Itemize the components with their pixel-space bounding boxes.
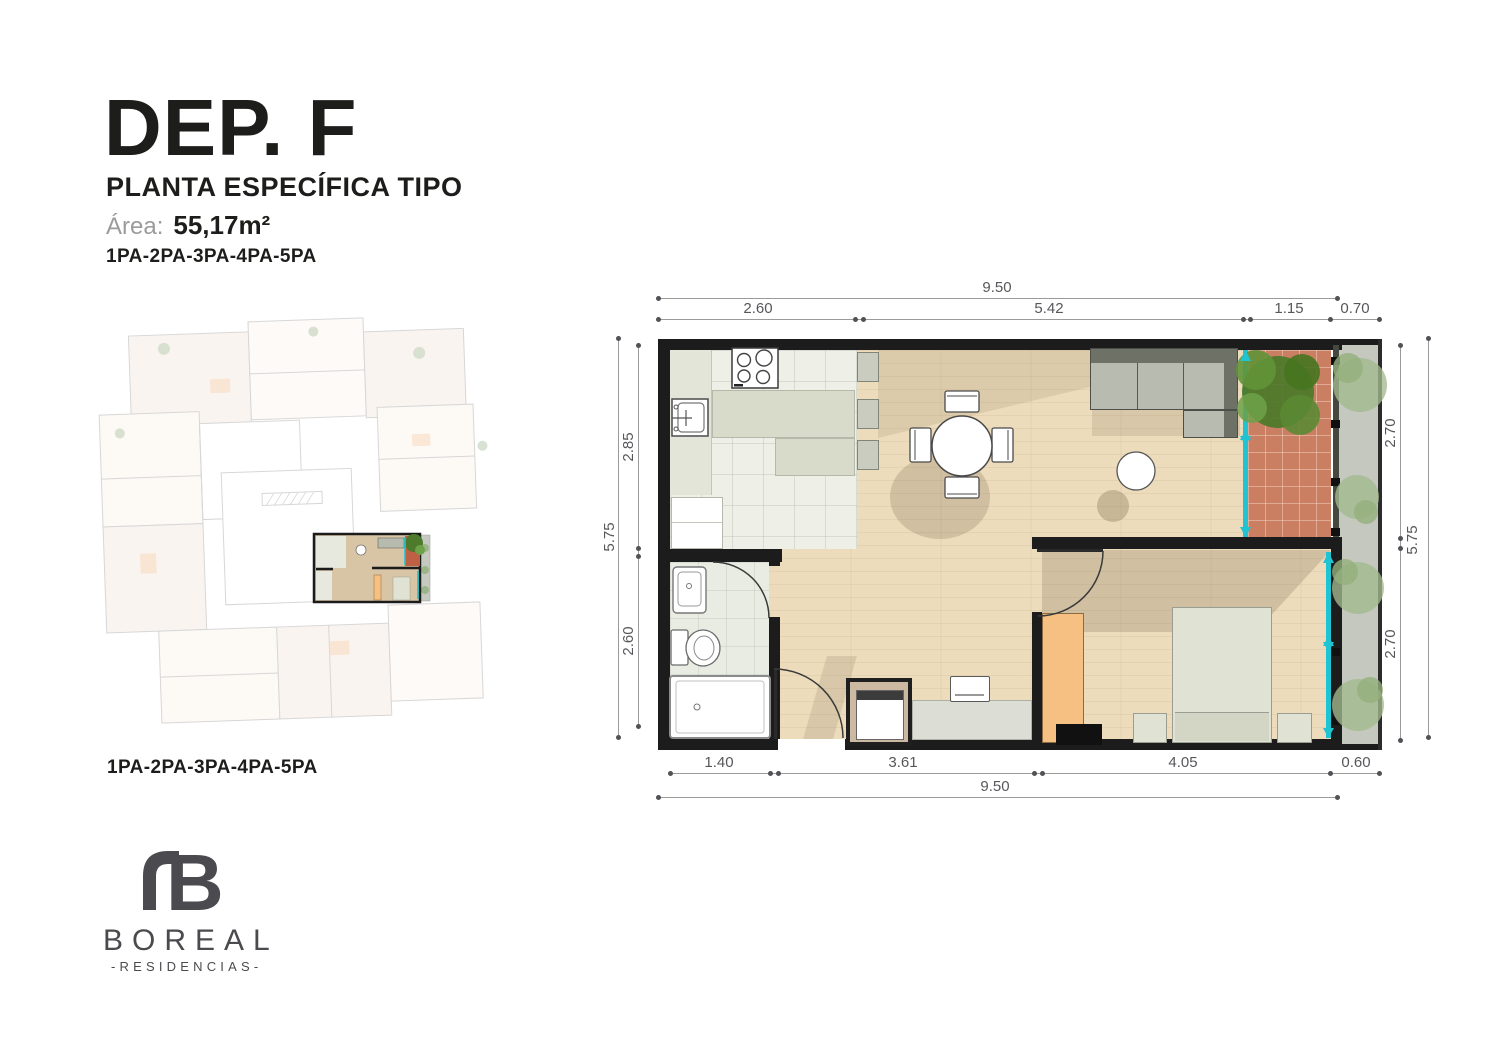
logo-letter: B — [166, 846, 224, 912]
dim-dot — [853, 317, 858, 322]
wall-top-garden — [1342, 339, 1382, 345]
wall-shower-stub — [661, 721, 701, 740]
dim-line-left-total — [618, 338, 619, 737]
garden-strip — [1339, 345, 1378, 744]
dim-line-bottom-total — [658, 797, 1337, 798]
dim-dot — [1426, 735, 1431, 740]
dim-dot — [616, 336, 621, 341]
dim-line-top-total — [658, 298, 1337, 299]
floorplan-sheet: DEP. F PLANTA ESPECÍFICA TIPO Área:55,17… — [0, 0, 1500, 1061]
dim-dot — [1377, 317, 1382, 322]
dim-right-seg-2: 2.70 — [1383, 614, 1399, 674]
entry-door-leaf — [774, 668, 777, 739]
sofa-arm — [1224, 349, 1237, 409]
dim-dot — [636, 724, 641, 729]
wall-garden-outer — [1378, 339, 1382, 750]
wall-right-bedroom — [1331, 545, 1342, 750]
sofa-chaise-arm — [1224, 411, 1237, 437]
dim-dot — [1426, 336, 1431, 341]
refrigerator — [671, 497, 723, 549]
dim-dot — [1328, 317, 1333, 322]
refrigerator-seam — [672, 522, 722, 523]
wall-top — [658, 339, 1342, 350]
bar-stool-2 — [857, 399, 879, 429]
dim-right-total: 5.75 — [1405, 510, 1421, 570]
dim-line-right-total — [1428, 338, 1429, 737]
kitchen-counter-left — [670, 350, 712, 495]
balcony-floor — [1248, 350, 1331, 537]
wall-bottom-bath — [658, 739, 778, 750]
area-row: Área:55,17m² — [106, 210, 270, 241]
bedroom-door-leaf — [1037, 549, 1103, 552]
balcony-railing — [1333, 345, 1339, 545]
dim-dot — [1377, 771, 1382, 776]
wall-kitchen-bath-divider — [658, 549, 782, 562]
dim-dot — [1328, 771, 1333, 776]
brand-tagline: -RESIDENCIAS- — [111, 959, 262, 974]
dim-dot — [776, 771, 781, 776]
kitchen-counter-top — [712, 390, 855, 438]
wall-left — [658, 339, 670, 750]
dim-dot — [1241, 317, 1246, 322]
wall-living-bedroom — [1032, 537, 1342, 549]
dim-dot — [1040, 771, 1045, 776]
dim-bottom-total: 9.50 — [965, 779, 1025, 795]
nightstand-right — [1277, 713, 1312, 743]
dim-bottom-seg-4: 0.60 — [1326, 755, 1386, 771]
dim-dot — [768, 771, 773, 776]
page-subtitle: PLANTA ESPECÍFICA TIPO — [106, 172, 463, 203]
dim-dot — [861, 317, 866, 322]
dim-dot — [636, 554, 641, 559]
dim-dot — [1248, 317, 1253, 322]
nightstand-left — [1133, 713, 1167, 743]
dim-dot — [1398, 536, 1403, 541]
dim-top-seg-2: 5.42 — [1019, 301, 1079, 317]
page-title: DEP. F — [104, 88, 358, 168]
dim-top-total: 9.50 — [967, 280, 1027, 296]
brand-name: BOREAL — [103, 924, 279, 958]
wall-bottom-garden — [1342, 744, 1382, 750]
dim-dot — [1032, 771, 1037, 776]
boreal-logo-mark: B — [136, 846, 231, 912]
faded-building — [96, 314, 497, 725]
dim-left-seg-1: 2.85 — [621, 417, 637, 477]
bathroom-floor — [670, 562, 769, 739]
dim-line-left-segments — [638, 345, 639, 726]
overview-levels-caption: 1PA-2PA-3PA-4PA-5PA — [107, 757, 318, 779]
balcony-sliding-door — [1243, 350, 1248, 537]
levels-tag: 1PA-2PA-3PA-4PA-5PA — [106, 246, 317, 268]
sofa — [1090, 348, 1238, 410]
dim-dot — [616, 735, 621, 740]
bedroom-window — [1326, 552, 1331, 738]
dim-left-total: 5.75 — [602, 507, 618, 567]
dim-bottom-seg-2: 3.61 — [873, 755, 933, 771]
highlighted-unit — [314, 534, 430, 602]
dim-top-seg-4: 0.70 — [1325, 301, 1385, 317]
dim-bottom-seg-3: 4.05 — [1153, 755, 1213, 771]
bed-pillows — [1175, 712, 1269, 741]
laundry-nook — [846, 678, 912, 746]
sofa-chaise — [1183, 410, 1238, 438]
bar-stool-1 — [857, 352, 879, 382]
dim-dot — [1335, 795, 1340, 800]
sofa-seam-1 — [1137, 363, 1138, 409]
wall-bedroom-stub — [1032, 612, 1042, 739]
dim-dot — [656, 795, 661, 800]
area-value: 55,17m² — [173, 210, 270, 240]
building-key-plan — [95, 312, 515, 732]
dim-bottom-seg-1: 1.40 — [689, 755, 749, 771]
dim-dot — [1398, 343, 1403, 348]
dim-dot — [1398, 546, 1403, 551]
desk-chair — [950, 676, 990, 702]
dim-dot — [656, 296, 661, 301]
sofa-backrest — [1091, 349, 1237, 363]
dim-dot — [656, 317, 661, 322]
washing-machine — [856, 690, 904, 740]
bed — [1172, 607, 1272, 743]
desk — [912, 700, 1032, 740]
tv-stand — [1056, 724, 1102, 745]
dim-top-seg-3: 1.15 — [1259, 301, 1319, 317]
dim-dot — [668, 771, 673, 776]
sofa-seam-2 — [1183, 363, 1184, 409]
dim-top-seg-1: 2.60 — [728, 301, 788, 317]
dim-right-seg-1: 2.70 — [1383, 403, 1399, 463]
dim-line-right-segments — [1400, 345, 1401, 740]
desk-chair-back — [955, 694, 984, 696]
dim-dot — [636, 343, 641, 348]
area-label: Área: — [106, 213, 163, 240]
dim-dot — [636, 546, 641, 551]
wall-bath-right-top — [769, 549, 780, 566]
dim-dot — [1398, 738, 1403, 743]
kitchen-counter-leg — [775, 438, 855, 476]
dim-line-top-segments — [658, 319, 1379, 320]
bar-stool-3 — [857, 440, 879, 470]
dim-left-seg-2: 2.60 — [621, 611, 637, 671]
washer-control-panel — [857, 691, 903, 700]
